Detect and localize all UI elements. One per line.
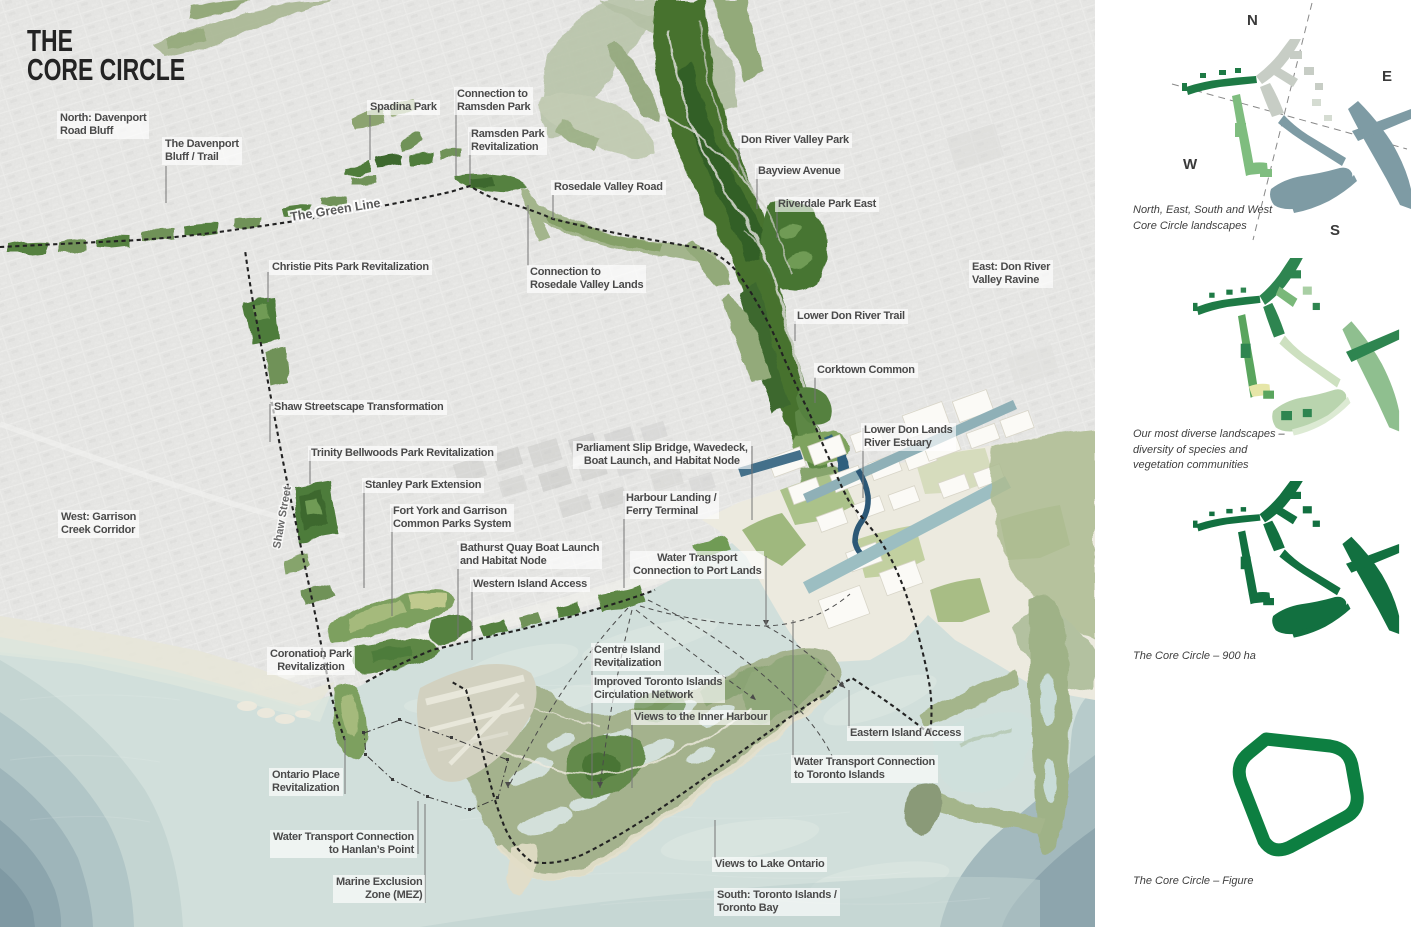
svg-text:N: N	[1247, 12, 1258, 29]
svg-text:E: E	[1382, 68, 1392, 85]
svg-text:S: S	[1330, 222, 1340, 239]
svg-text:W: W	[1183, 156, 1198, 173]
